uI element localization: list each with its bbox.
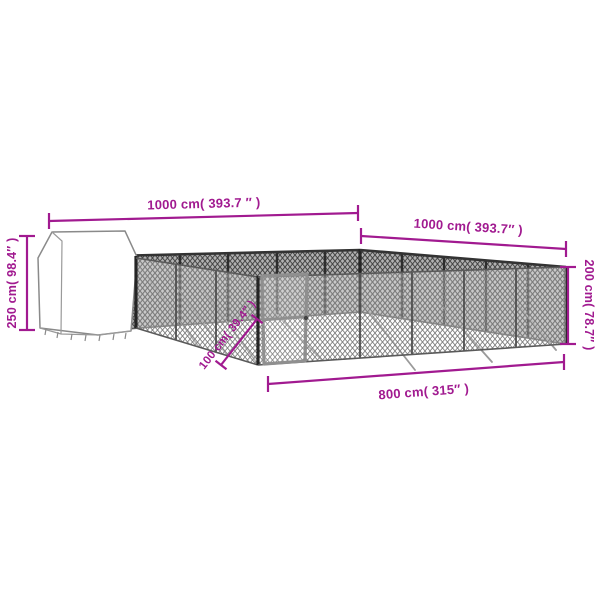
kennel-illustration: 1000 cm( 393.7 ″ ) 1000 cm( 393.7″ ) 250… <box>0 0 600 600</box>
dimension-right-width: 1000 cm( 393.7″ ) <box>361 216 566 257</box>
dimension-right-width-label: 1000 cm( 393.7″ ) <box>413 216 523 238</box>
dimension-top-width-label: 1000 cm( 393.7 ″ ) <box>147 195 261 213</box>
dimension-shelter-height: 250 cm( 98.4″ ) <box>5 236 35 330</box>
dimension-front-width-label: 800 cm( 315″ ) <box>378 381 470 403</box>
gate-latch <box>304 316 308 320</box>
shelter-house <box>38 231 137 341</box>
dimension-fence-height-label: 200 cm( 78.7″ ) <box>582 260 596 351</box>
dimension-top-width: 1000 cm( 393.7 ″ ) <box>49 195 358 229</box>
kennel-dimension-diagram: 1000 cm( 393.7 ″ ) 1000 cm( 393.7″ ) 250… <box>0 0 600 600</box>
dimension-shelter-height-label: 250 cm( 98.4″ ) <box>5 238 19 329</box>
kennel-gate <box>262 274 308 364</box>
